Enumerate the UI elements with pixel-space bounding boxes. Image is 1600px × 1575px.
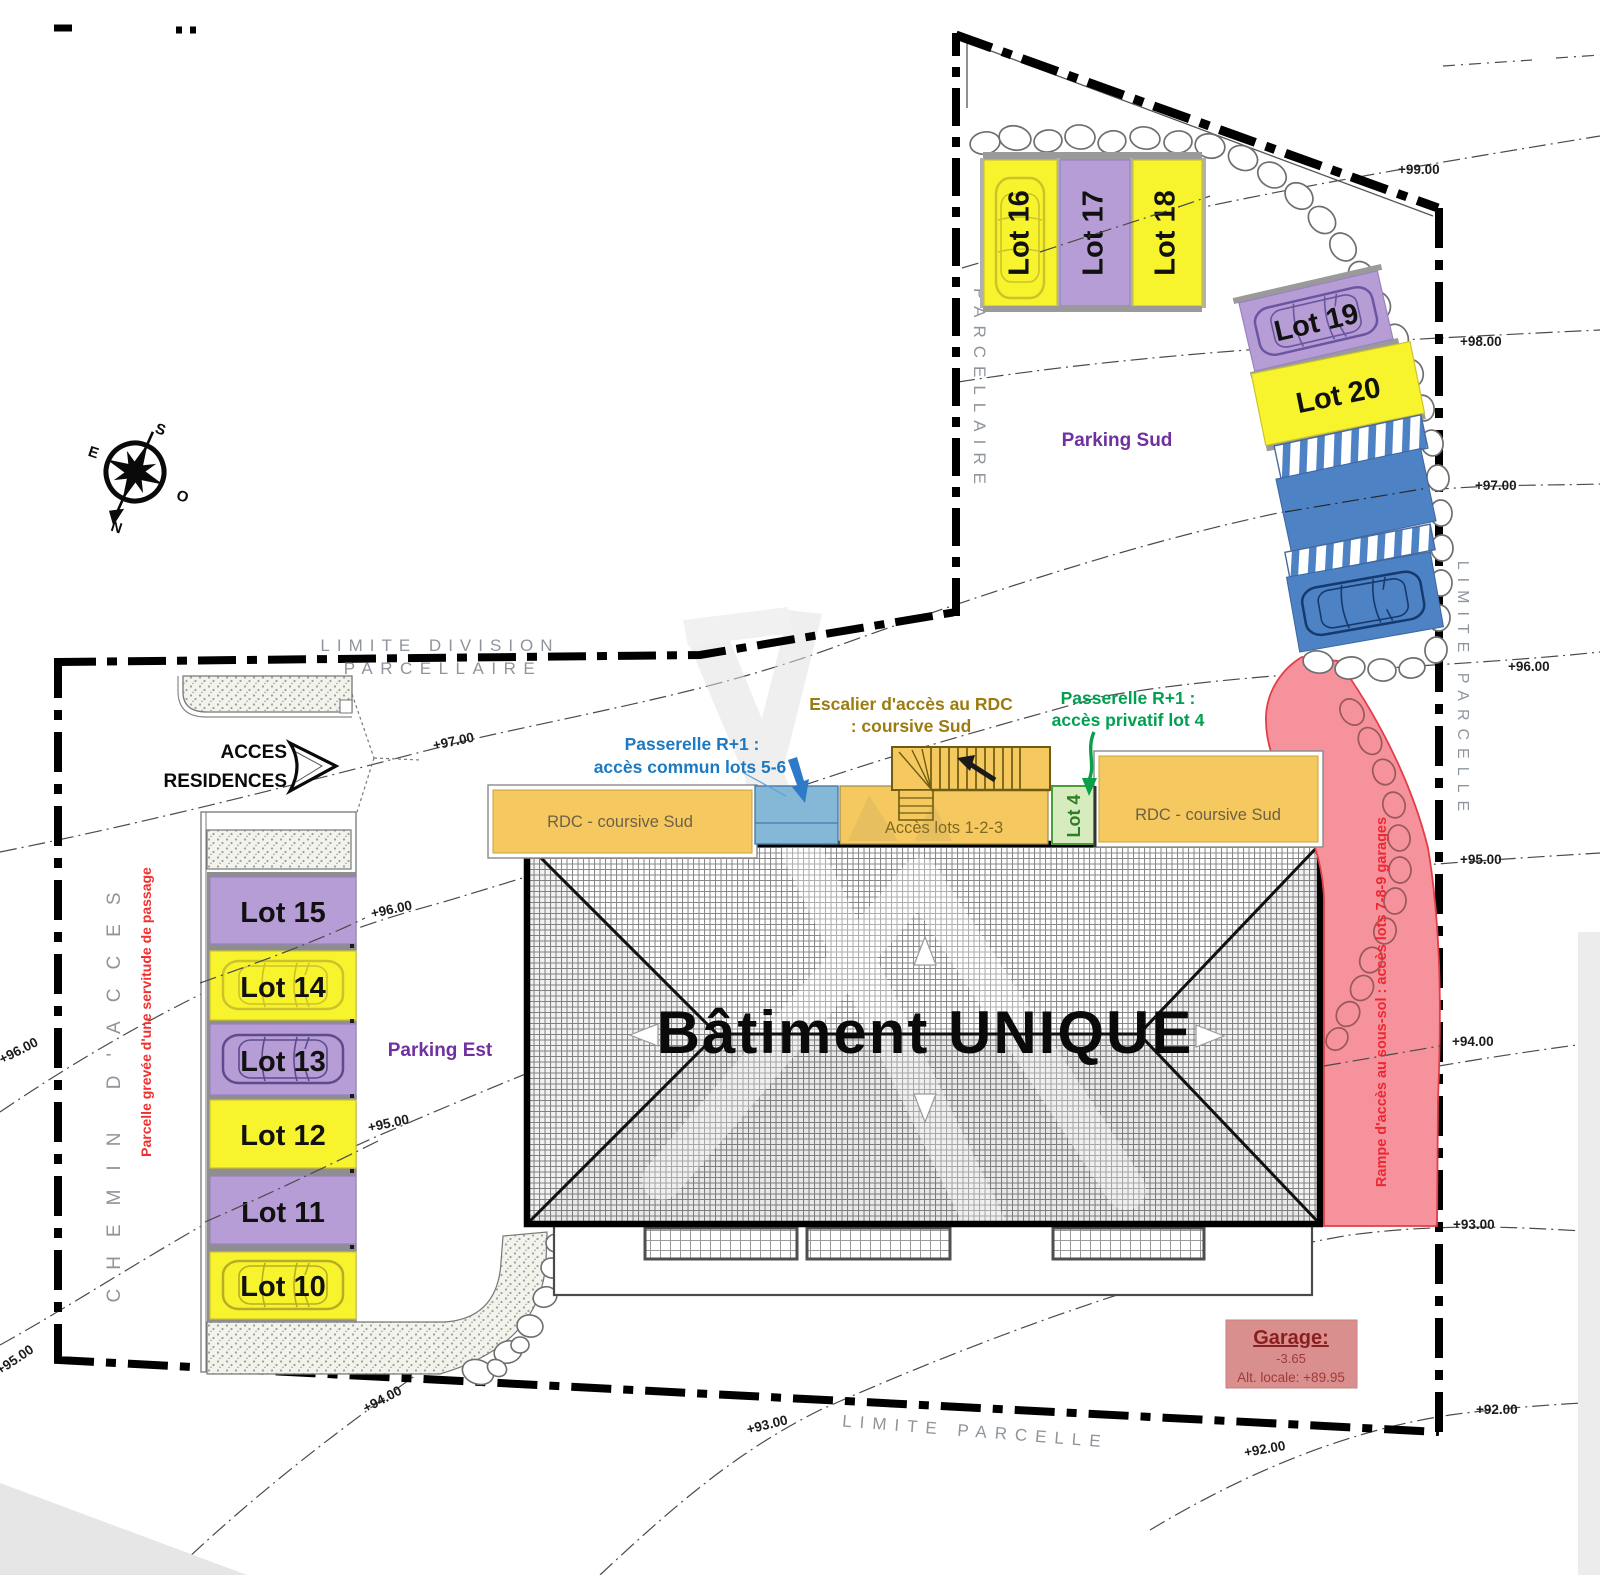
svg-text:Passerelle R+1 :: Passerelle R+1 : [1061, 688, 1196, 708]
svg-text:ACCES: ACCES [220, 742, 287, 763]
svg-text:Garage:: Garage: [1253, 1327, 1329, 1349]
svg-text:Escalier d'accès au RDC: Escalier d'accès au RDC [809, 694, 1013, 714]
svg-text:Lot 16: Lot 16 [1004, 190, 1036, 275]
svg-text:+95.00: +95.00 [1460, 852, 1502, 867]
svg-text:Lot 10: Lot 10 [240, 1271, 325, 1303]
svg-text:Lot 4: Lot 4 [1064, 795, 1084, 838]
svg-text:Parcelle grevée d'une servitud: Parcelle grevée d'une servitude de passa… [138, 867, 154, 1157]
svg-text:+93.00: +93.00 [1453, 1217, 1495, 1232]
svg-text:PARCELLAIRE: PARCELLAIRE [970, 288, 989, 492]
svg-text:CHEMIN D'ACCES: CHEMIN D'ACCES [104, 873, 125, 1302]
svg-text:-3.65: -3.65 [1276, 1351, 1306, 1366]
svg-text:Lot 12: Lot 12 [240, 1120, 325, 1152]
svg-text:accès privatif lot 4: accès privatif lot 4 [1052, 710, 1205, 730]
svg-text:RDC - coursive Sud: RDC - coursive Sud [547, 813, 693, 831]
svg-text:+94.00: +94.00 [1452, 1034, 1494, 1049]
svg-text:accès commun lots 5-6: accès commun lots 5-6 [594, 757, 787, 777]
svg-text:Passerelle R+1 :: Passerelle R+1 : [625, 734, 760, 754]
svg-text:Lot 18: Lot 18 [1150, 190, 1182, 275]
svg-text:Parking Sud: Parking Sud [1062, 430, 1173, 451]
svg-text:Lot 14: Lot 14 [240, 972, 325, 1004]
svg-text:+92.00: +92.00 [1476, 1402, 1518, 1417]
svg-text:: coursive Sud: : coursive Sud [851, 716, 972, 736]
svg-text:PARCELLAIRE: PARCELLAIRE [344, 659, 542, 678]
svg-text:RESIDENCES: RESIDENCES [163, 771, 287, 792]
svg-text:LIMITE PARCELLE: LIMITE PARCELLE [1454, 561, 1471, 819]
svg-text:Lot 13: Lot 13 [240, 1046, 325, 1078]
svg-text:Alt. locale: +89.95: Alt. locale: +89.95 [1237, 1370, 1345, 1385]
svg-text:+99.00: +99.00 [1398, 162, 1440, 177]
svg-text:+98.00: +98.00 [1460, 334, 1502, 349]
svg-text:Lot 15: Lot 15 [240, 897, 325, 929]
svg-text:Lot 17: Lot 17 [1078, 190, 1110, 275]
svg-text:Parking Est: Parking Est [388, 1040, 493, 1061]
svg-text:LIMITE DIVISION: LIMITE DIVISION [320, 636, 559, 655]
svg-text:Rampe d'accès au sous-sol : ac: Rampe d'accès au sous-sol : accès lots 7… [1374, 817, 1390, 1187]
svg-text:Lot 11: Lot 11 [241, 1197, 325, 1229]
svg-text:+96.00: +96.00 [1508, 659, 1550, 674]
svg-text:RDC - coursive Sud: RDC - coursive Sud [1135, 806, 1281, 824]
svg-text:Bâtiment UNIQUE: Bâtiment UNIQUE [657, 999, 1194, 1066]
svg-text:+97.00: +97.00 [1475, 478, 1517, 493]
